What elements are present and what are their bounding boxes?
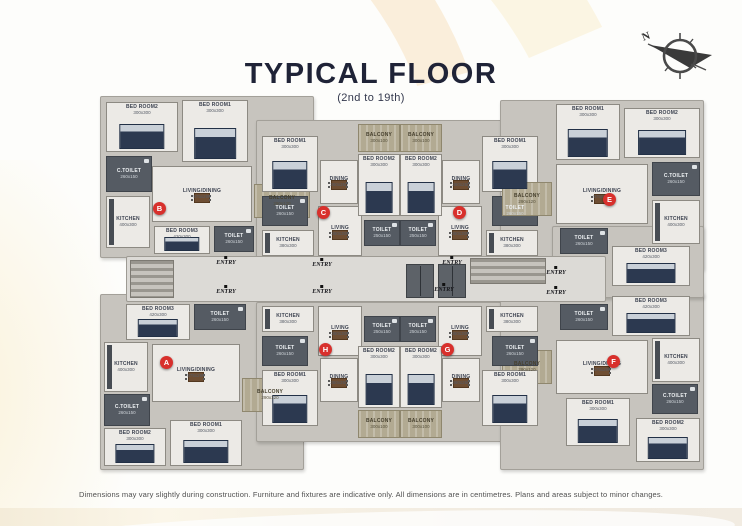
room-label: BED ROOM2300x300 xyxy=(625,109,699,157)
room-label: TOILET260x150 xyxy=(561,305,607,329)
entry-label-1: ENTRY xyxy=(216,256,236,266)
room-a-c-toilet: C.TOILET260x150 xyxy=(104,394,150,426)
room-h-toilet: TOILET250x150 xyxy=(364,316,400,342)
room-d-toilet: TOILET250x150 xyxy=(400,220,436,246)
room-f-kitchen: KITCHEN400x300 xyxy=(652,338,700,382)
room-label: TOILET260x150 xyxy=(493,337,537,365)
entry-label-4: ENTRY xyxy=(546,266,566,276)
room-h-bed-room2: BED ROOM2300x300 xyxy=(358,346,400,408)
room-label: BED ROOM1300x300 xyxy=(263,371,317,425)
unit-badge-b: B xyxy=(153,202,166,215)
entry-label-5: ENTRY xyxy=(216,285,236,295)
entry-label-3: ENTRY xyxy=(442,256,462,266)
room-b-bed-room2: BED ROOM2300x300 xyxy=(106,102,178,152)
room-f-bed-room2: BED ROOM2300x300 xyxy=(636,418,700,462)
room-b-kitchen: KITCHEN400x300 xyxy=(106,196,150,248)
room-label: TOILET260x150 xyxy=(195,305,245,329)
room-label: TOILET250x150 xyxy=(365,221,399,245)
room-label: LIVING/DINING575x290 xyxy=(557,165,647,223)
room-d-bed-room2: BED ROOM2300x300 xyxy=(400,154,442,216)
room-a-kitchen: KITCHEN400x300 xyxy=(104,342,148,392)
room-label: C.TOILET260x150 xyxy=(653,163,699,195)
room-c-balcony: BALCONY300x100 xyxy=(358,124,400,152)
room-label: KITCHEN380x300 xyxy=(487,231,537,255)
room-b-bed-room3: BED ROOM3420x300 xyxy=(154,226,210,254)
room-e-bed-room1: BED ROOM1300x300 xyxy=(556,104,620,160)
room-e-bed-room2: BED ROOM2300x300 xyxy=(624,108,700,158)
room-g-bed-room1: BED ROOM1300x300 xyxy=(482,370,538,426)
room-b-living-dining: LIVING/DINING575x290 xyxy=(152,166,252,222)
room-e-kitchen: KITCHEN400x300 xyxy=(652,200,700,244)
floor-plan-page: TYPICAL FLOOR (2nd to 19th) N BED ROOM23… xyxy=(0,0,742,526)
room-g-kitchen: KITCHEN380x300 xyxy=(486,306,538,332)
room-label: TOILET250x150 xyxy=(401,221,435,245)
room-label: KITCHEN380x300 xyxy=(487,307,537,331)
room-g-toilet: TOILET250x150 xyxy=(400,316,436,342)
unit-badge-a: A xyxy=(160,356,173,369)
room-label: BED ROOM3420x300 xyxy=(613,297,689,335)
room-e-toilet: TOILET260x150 xyxy=(560,228,608,254)
room-label: KITCHEN400x300 xyxy=(653,339,699,381)
room-label: DINING360x260 xyxy=(443,359,479,401)
room-a-living-dining: LIVING/DINING575x290 xyxy=(152,344,240,402)
unit-badge-h: H xyxy=(319,343,332,356)
room-label: LIVING/DINING575x290 xyxy=(153,167,251,221)
room-d-kitchen: KITCHEN380x300 xyxy=(486,230,538,256)
disclaimer-text: Dimensions may vary slightly during cons… xyxy=(0,490,742,499)
room-b-bed-room1: BED ROOM1300x300 xyxy=(182,100,248,162)
unit-badge-c: C xyxy=(317,206,330,219)
room-a-bed-room3: BED ROOM3420x300 xyxy=(126,304,190,340)
room-f-bed-room3: BED ROOM3420x300 xyxy=(612,296,690,336)
room-label: BED ROOM1300x300 xyxy=(263,137,317,191)
room-label: DINING360x260 xyxy=(321,161,357,203)
room-e-c-toilet: C.TOILET260x150 xyxy=(652,162,700,196)
room-label: C.TOILET260x150 xyxy=(107,157,151,191)
room-a-bed-room1: BED ROOM1300x300 xyxy=(170,420,242,466)
room-label: BED ROOM2300x300 xyxy=(637,419,699,461)
room-e-balcony: BALCONY290x120 xyxy=(502,182,552,216)
room-f-bed-room1: BED ROOM1300x300 xyxy=(566,398,630,446)
room-h-bed-room1: BED ROOM1300x300 xyxy=(262,370,318,426)
room-b-toilet: TOILET260x150 xyxy=(214,226,254,252)
room-h-dining: DINING360x260 xyxy=(320,358,358,402)
room-d-balcony: BALCONY300x100 xyxy=(400,124,442,152)
room-label: BALCONY300x100 xyxy=(359,411,399,437)
room-g-bed-room2: BED ROOM2300x300 xyxy=(400,346,442,408)
room-label: BED ROOM2300x300 xyxy=(359,347,399,407)
room-label: BED ROOM1300x300 xyxy=(171,421,241,465)
room-h-toilet: TOILET260x150 xyxy=(262,336,308,366)
room-c-kitchen: KITCHEN380x300 xyxy=(262,230,314,256)
unit-badge-e: E xyxy=(603,193,616,206)
room-label: TOILET260x150 xyxy=(263,197,307,225)
room-g-toilet: TOILET260x150 xyxy=(492,336,538,366)
room-label: BED ROOM2300x300 xyxy=(107,103,177,151)
room-label: TOILET260x150 xyxy=(215,227,253,251)
room-g-balcony: BALCONY300x100 xyxy=(400,410,442,438)
room-label: BED ROOM3420x300 xyxy=(155,227,209,253)
room-label: TOILET250x150 xyxy=(365,317,399,341)
room-label: BED ROOM2300x300 xyxy=(105,429,165,465)
room-label: BED ROOM2300x300 xyxy=(359,155,399,215)
room-label: KITCHEN400x300 xyxy=(107,197,149,247)
room-label: BALCONY300x100 xyxy=(401,125,441,151)
room-label: BED ROOM2300x300 xyxy=(401,347,441,407)
room-g-dining: DINING360x260 xyxy=(442,358,480,402)
room-a-toilet: TOILET260x150 xyxy=(194,304,246,330)
room-label: BED ROOM2300x300 xyxy=(401,155,441,215)
room-label: BALCONY300x100 xyxy=(359,125,399,151)
room-label: TOILET260x150 xyxy=(561,229,607,253)
room-label: KITCHEN400x300 xyxy=(653,201,699,243)
room-label: KITCHEN380x300 xyxy=(263,307,313,331)
room-c-dining: DINING360x260 xyxy=(320,160,358,204)
unit-badge-g: G xyxy=(441,343,454,356)
room-d-dining: DINING360x260 xyxy=(442,160,480,204)
lift-block xyxy=(406,264,434,298)
room-f-c-toilet: C.TOILET260x150 xyxy=(652,384,698,414)
room-h-kitchen: KITCHEN380x300 xyxy=(262,306,314,332)
room-label: BED ROOM3420x300 xyxy=(613,247,689,285)
unit-badge-f: F xyxy=(607,355,620,368)
entry-label-7: ENTRY xyxy=(434,283,454,293)
room-a-bed-room2: BED ROOM2300x300 xyxy=(104,428,166,466)
room-label: BED ROOM1300x300 xyxy=(567,399,629,445)
room-c-toilet: TOILET260x150 xyxy=(262,196,308,226)
room-c-bed-room2: BED ROOM2300x300 xyxy=(358,154,400,216)
room-f-toilet: TOILET260x150 xyxy=(560,304,608,330)
room-label: BALCONY290x120 xyxy=(503,183,551,215)
room-label: BED ROOM1300x300 xyxy=(557,105,619,159)
room-label: TOILET260x150 xyxy=(263,337,307,365)
room-f-living-dining: LIVING/DINING575x290 xyxy=(556,340,648,394)
stairs-block xyxy=(130,260,174,298)
room-label: DINING360x260 xyxy=(321,359,357,401)
room-e-bed-room3: BED ROOM3420x300 xyxy=(612,246,690,286)
room-c-toilet: TOILET250x150 xyxy=(364,220,400,246)
room-label: KITCHEN380x300 xyxy=(263,231,313,255)
room-label: BED ROOM1300x300 xyxy=(183,101,247,161)
room-c-bed-room1: BED ROOM1300x300 xyxy=(262,136,318,192)
room-b-c-toilet: C.TOILET260x150 xyxy=(106,156,152,192)
room-label: LIVING/DINING575x290 xyxy=(557,341,647,393)
room-h-balcony: BALCONY300x100 xyxy=(358,410,400,438)
entry-label-2: ENTRY xyxy=(312,258,332,268)
room-label: KITCHEN400x300 xyxy=(105,343,147,391)
entry-label-6: ENTRY xyxy=(312,285,332,295)
stairs-block xyxy=(470,258,546,284)
room-label: BED ROOM1300x300 xyxy=(483,371,537,425)
room-label: DINING360x260 xyxy=(443,161,479,203)
room-e-living-dining: LIVING/DINING575x290 xyxy=(556,164,648,224)
room-label: C.TOILET260x150 xyxy=(653,385,697,413)
room-label: BALCONY300x100 xyxy=(401,411,441,437)
room-label: C.TOILET260x150 xyxy=(105,395,149,425)
room-label: LIVING/DINING575x290 xyxy=(153,345,239,401)
unit-badge-d: D xyxy=(453,206,466,219)
entry-label-8: ENTRY xyxy=(546,286,566,296)
room-label: BED ROOM3420x300 xyxy=(127,305,189,339)
floor-plan: BED ROOM2300x300BED ROOM1300x300C.TOILET… xyxy=(0,0,742,526)
room-label: TOILET250x150 xyxy=(401,317,435,341)
